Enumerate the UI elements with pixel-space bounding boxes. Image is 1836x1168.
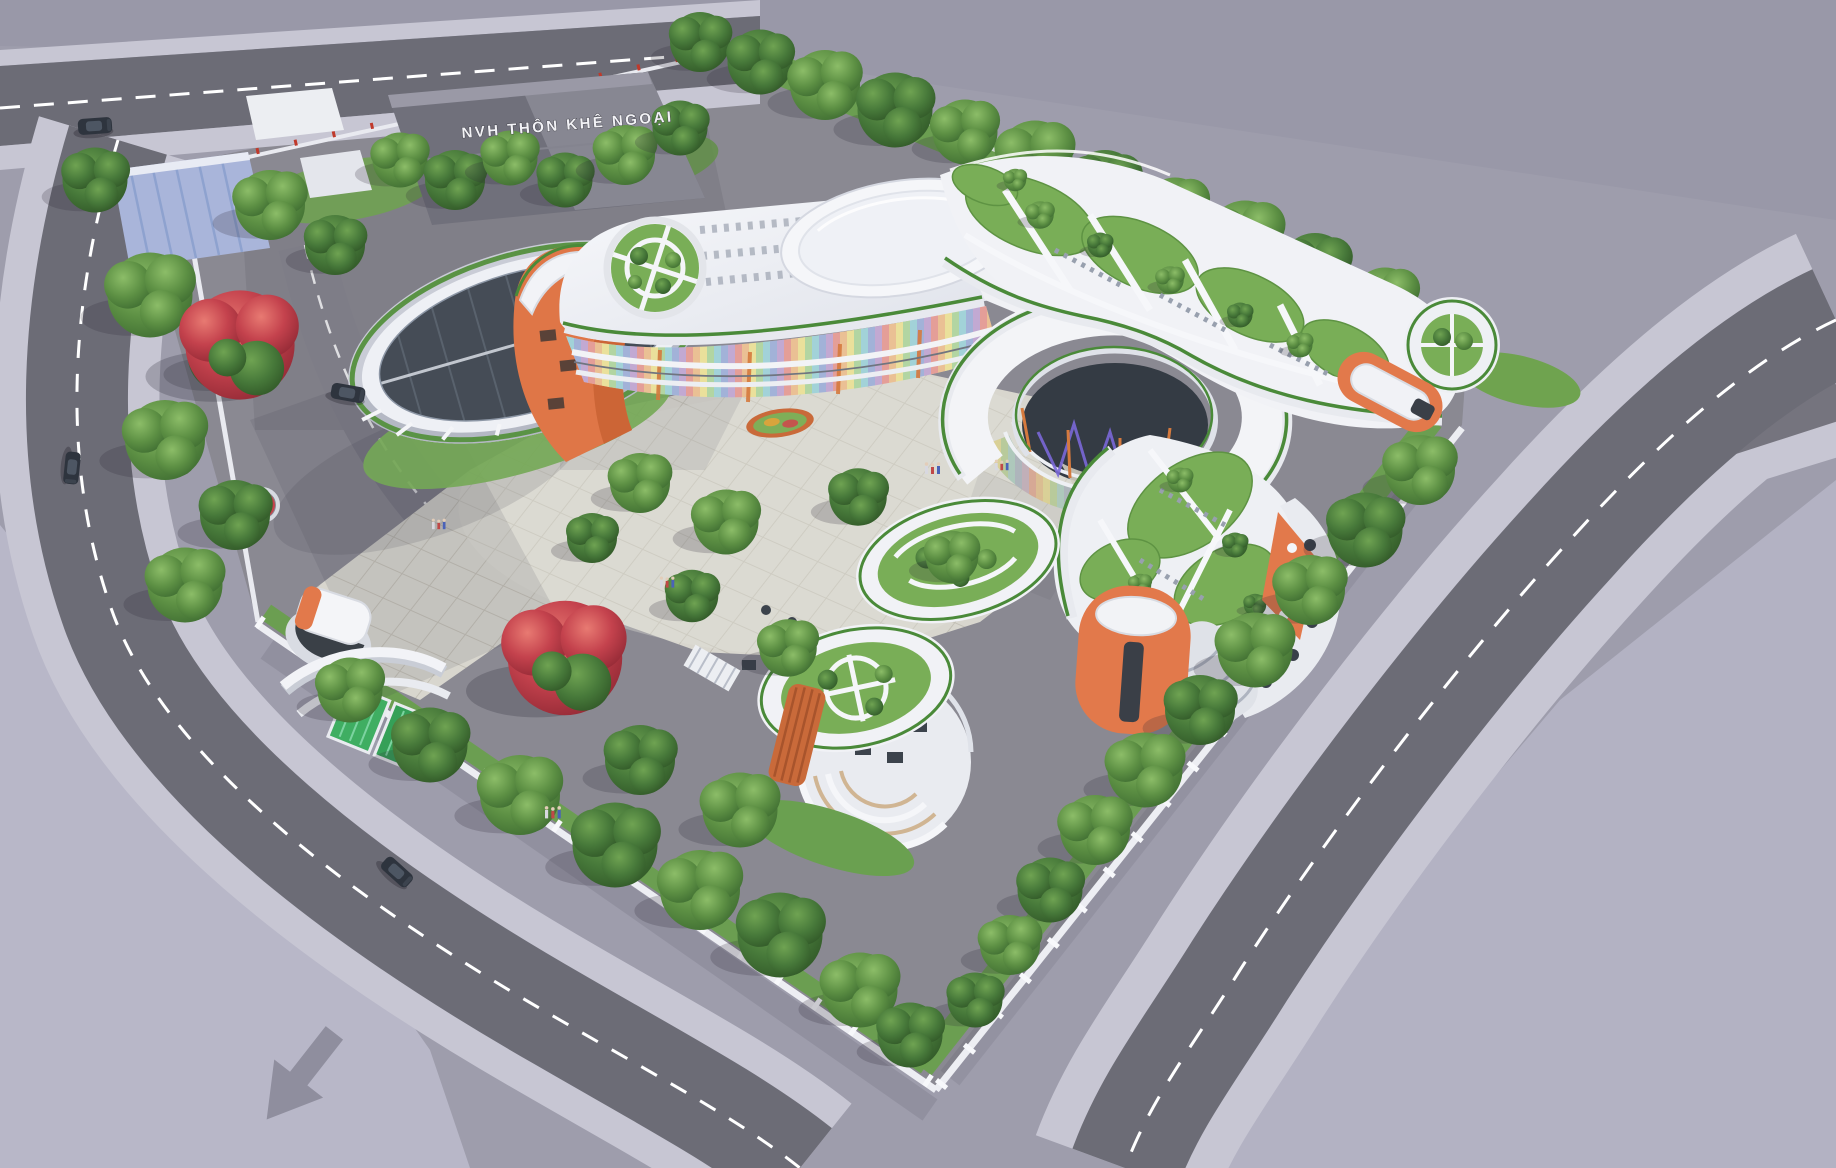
aerial-rendering: NVH THÔN KHÊ NGOẠI xyxy=(0,0,1836,1168)
rendering-canvas: NVH THÔN KHÊ NGOẠI xyxy=(0,0,1836,1168)
